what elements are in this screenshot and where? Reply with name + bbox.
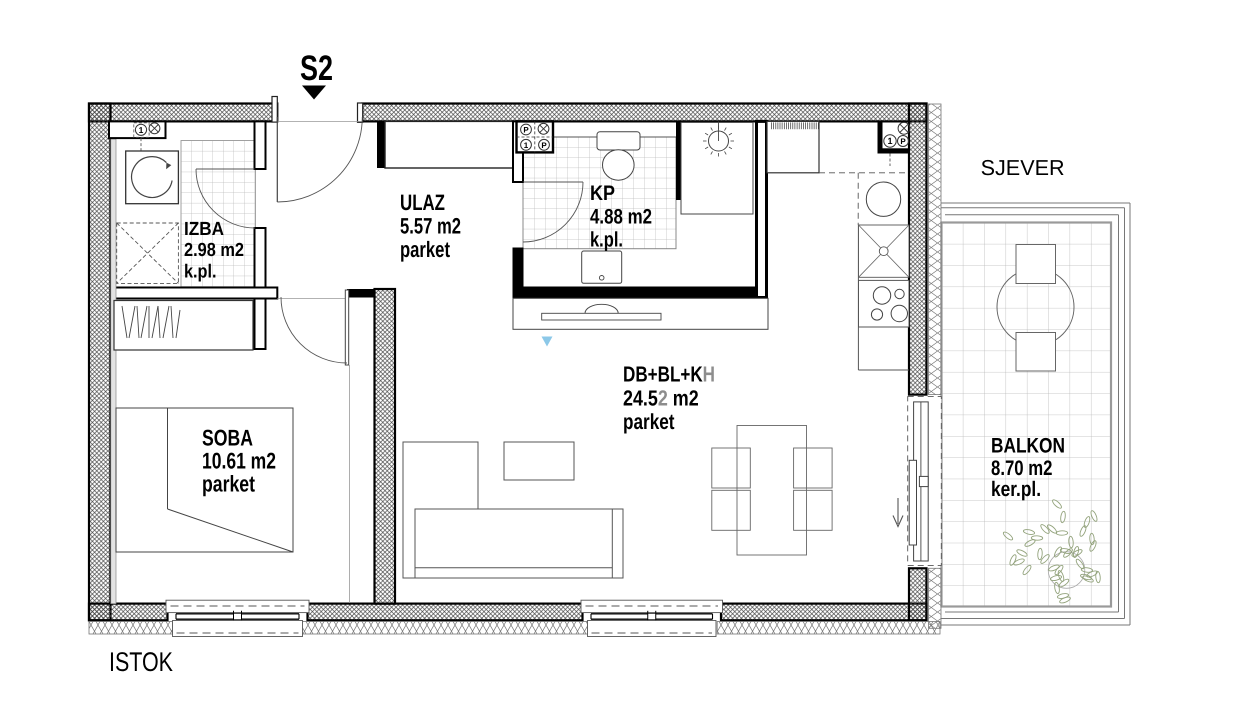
svg-text:ISTOK: ISTOK	[109, 647, 173, 677]
svg-text:ULAZ: ULAZ	[400, 190, 445, 215]
svg-text:P: P	[541, 141, 547, 150]
svg-text:4.88 m2: 4.88 m2	[590, 205, 652, 228]
svg-text:1: 1	[887, 136, 892, 146]
svg-text:8.70 m2: 8.70 m2	[991, 457, 1053, 480]
svg-text:KP: KP	[590, 182, 615, 205]
svg-text:ker.pl.: ker.pl.	[991, 478, 1041, 501]
svg-text:IZBA: IZBA	[184, 219, 224, 240]
svg-text:parket: parket	[202, 471, 255, 497]
svg-text:24.52 m2: 24.52 m2	[623, 385, 699, 410]
svg-text:parket: parket	[623, 409, 675, 434]
svg-text:k.pl.: k.pl.	[184, 261, 217, 282]
svg-text:P: P	[523, 126, 529, 135]
svg-text:10.61 m2: 10.61 m2	[202, 448, 276, 474]
svg-text:1: 1	[524, 141, 529, 150]
svg-text:5.57 m2: 5.57 m2	[400, 214, 461, 239]
svg-text:1: 1	[139, 125, 144, 135]
svg-text:S2: S2	[300, 48, 333, 88]
svg-text:P: P	[900, 137, 906, 146]
svg-text:k.pl.: k.pl.	[590, 229, 623, 252]
svg-text:parket: parket	[400, 237, 450, 262]
svg-text:SJEVER: SJEVER	[981, 155, 1065, 180]
svg-text:DB+BL+KH: DB+BL+KH	[623, 362, 715, 387]
svg-text:2.98 m2: 2.98 m2	[184, 240, 244, 261]
svg-text:SOBA: SOBA	[202, 424, 253, 450]
svg-text:BALKON: BALKON	[991, 435, 1065, 458]
